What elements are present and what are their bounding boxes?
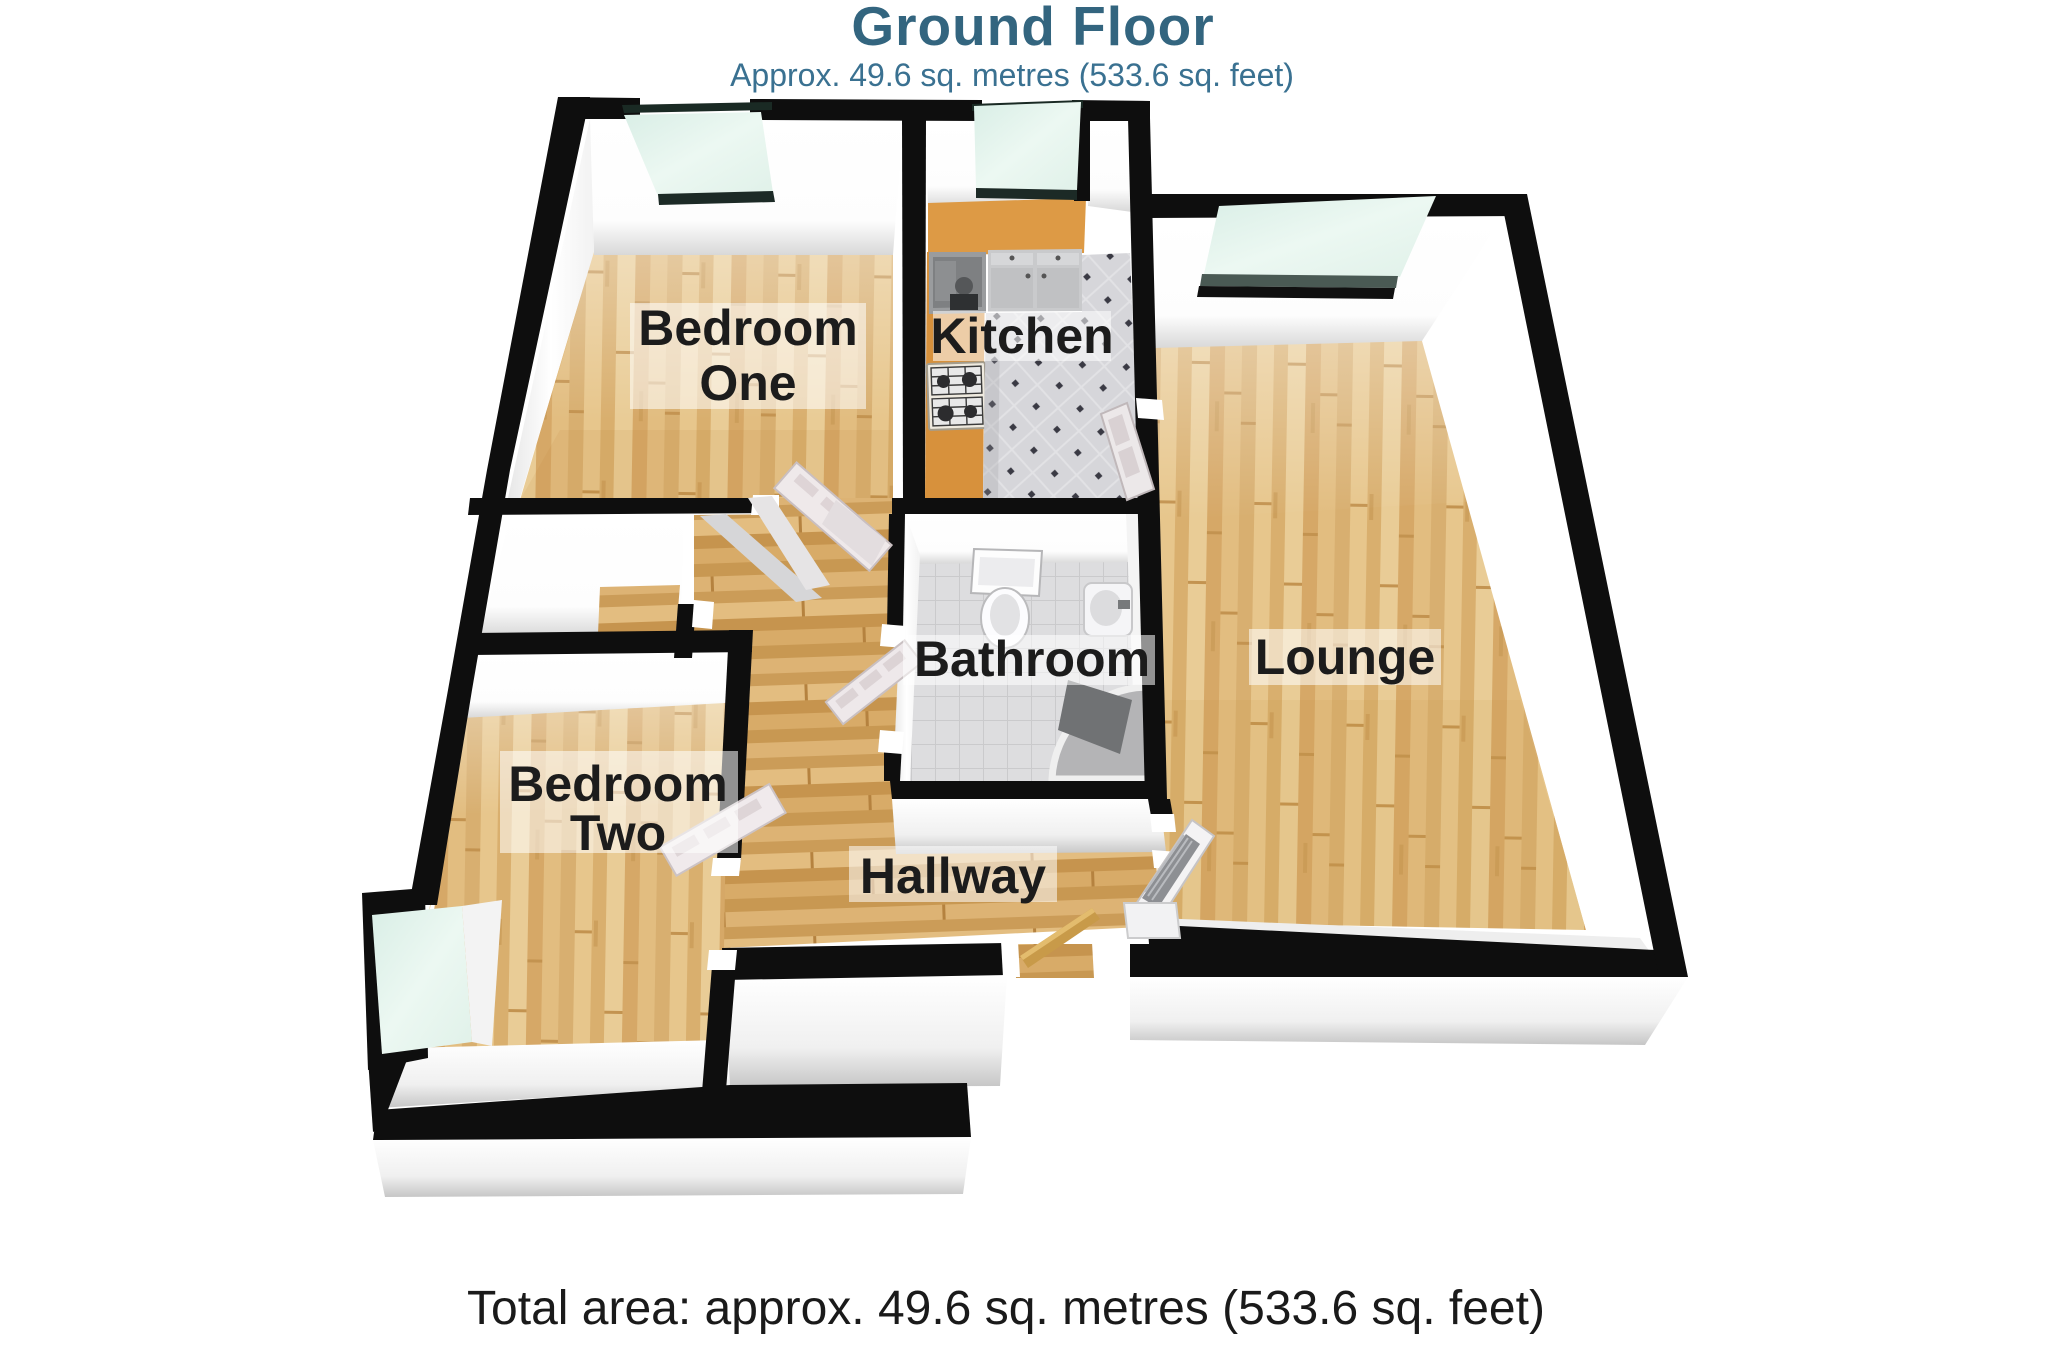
svg-text:Kitchen: Kitchen bbox=[930, 308, 1113, 364]
svg-text:Hallway: Hallway bbox=[860, 848, 1046, 904]
svg-text:Bathroom: Bathroom bbox=[914, 631, 1150, 687]
svg-text:Bedroom: Bedroom bbox=[508, 756, 727, 812]
svg-text:Lounge: Lounge bbox=[1255, 629, 1436, 685]
svg-text:One: One bbox=[699, 355, 796, 411]
svg-text:Two: Two bbox=[570, 805, 666, 861]
svg-text:Approx. 49.6 sq. metres (533.6: Approx. 49.6 sq. metres (533.6 sq. feet) bbox=[730, 57, 1294, 93]
svg-text:Ground Floor: Ground Floor bbox=[851, 0, 1214, 57]
svg-text:Total area: approx. 49.6 sq. m: Total area: approx. 49.6 sq. metres (533… bbox=[467, 1282, 1545, 1335]
svg-text:Bedroom: Bedroom bbox=[638, 300, 857, 356]
